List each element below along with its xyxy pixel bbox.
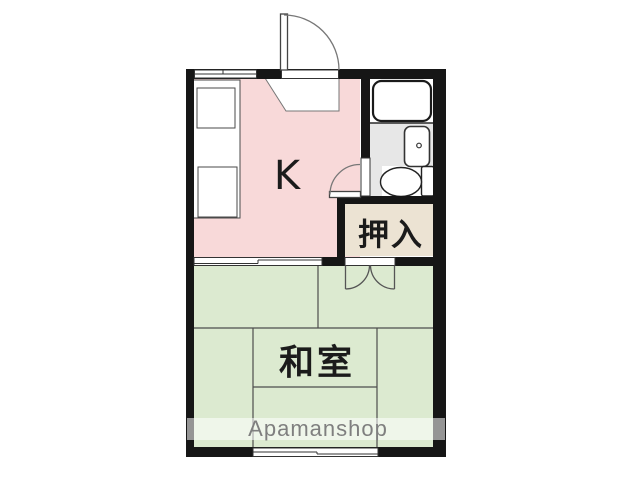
- kitchen-label: K: [274, 153, 300, 199]
- bath-door-leaf: [330, 192, 361, 198]
- toilet-tank-shape: [422, 167, 435, 197]
- bath-door-threshold: [361, 158, 370, 196]
- watermark-text: Apamanshop: [248, 416, 388, 442]
- bathtub-shape: [373, 81, 431, 121]
- wall-closet-left: [337, 196, 345, 257]
- wall-kitchen-bath: [361, 79, 370, 158]
- closet-door-threshold: [345, 258, 395, 266]
- toilet-shape: [381, 168, 422, 197]
- wall-left: [186, 69, 194, 457]
- floor-plan-drawing: [0, 0, 640, 480]
- washbasin-drain: [417, 143, 422, 148]
- kitchen-counter: [194, 80, 241, 218]
- washitsu-label: 和室: [279, 335, 355, 386]
- floor-plan: K 押入 和室 Apamanshop: [0, 0, 640, 480]
- entrance-threshold: [282, 70, 339, 79]
- entrance-door-swing: [284, 15, 339, 70]
- closet-label: 押入: [358, 210, 424, 255]
- entrance-door-leaf: [281, 14, 288, 70]
